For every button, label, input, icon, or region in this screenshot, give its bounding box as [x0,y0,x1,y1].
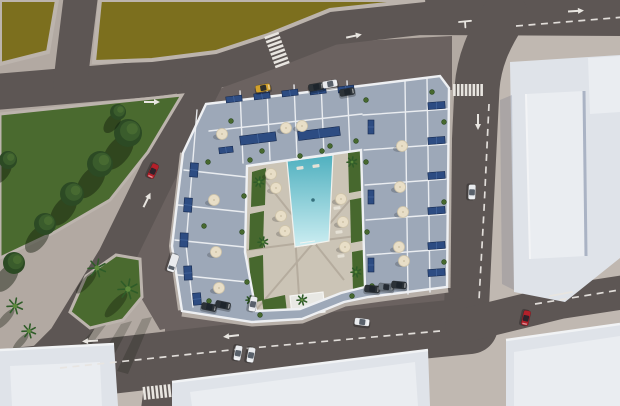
umbrella-pole [399,186,401,188]
potted-plant [245,280,250,285]
potted-plant [242,194,247,199]
tree-canopy [117,106,123,112]
potted-plant [207,299,212,304]
road-top-left [70,0,81,86]
car-dark-parked-south-4 [390,281,408,292]
potted-plant [350,294,355,299]
umbrella-pole [344,246,346,248]
solar-panel [184,198,193,213]
crosswalk-stripe [461,84,464,96]
vehicle-windows [359,319,366,325]
vehicle-windows [313,84,320,91]
vehicle-windows [206,304,213,311]
tree-canopy [71,186,81,196]
vehicle-windows [469,189,475,195]
palm-crown [94,265,99,270]
crosswalk-stripe [453,84,456,96]
potted-plant [364,98,369,103]
solar-panel [192,293,201,306]
potted-plant [229,119,234,124]
umbrella-pole [403,260,405,262]
potted-plant [442,260,447,265]
palm-crown [351,161,354,164]
potted-plant [328,144,333,149]
crosswalk-stripe [480,84,483,96]
solar-panel [190,163,199,178]
umbrella-pole [275,187,277,189]
garden-patch [251,168,266,207]
umbrella-pole [401,145,403,147]
vehicle-hood-highlight [469,197,474,199]
palm-crown [262,241,265,244]
solar-panel [428,101,445,109]
umbrella-pole [218,287,220,289]
crosswalk-stripe [476,84,479,96]
car-white-right-road [466,183,476,200]
umbrella-pole [340,198,342,200]
aerial-render-scene [0,0,620,406]
crosswalk-stripe [469,84,472,96]
crosswalk-stripe [465,84,468,96]
vehicle-windows [369,286,375,292]
umbrella-pole [342,221,344,223]
potted-plant [206,160,211,165]
tree-canopy [127,123,138,134]
vehicle-windows [327,81,334,88]
vehicle-windows [383,284,389,290]
vehicle-windows [344,89,351,96]
umbrella-pole [398,246,400,248]
tree-canopy [7,154,14,161]
potted-plant [258,313,263,318]
umbrella-pole [221,133,223,135]
solar-panel [428,268,445,276]
umbrella-pole [213,199,215,201]
potted-plant [202,224,207,229]
potted-plant [430,90,435,95]
pool-swimmer [311,198,315,202]
palm-crown [13,304,17,308]
umbrella-pole [280,215,282,217]
building-right-shadow [500,95,514,290]
palm-crown [125,286,131,292]
building-bottom-left-roof [10,362,102,406]
palm-crown [258,181,261,184]
vehicle-windows [250,301,257,308]
solar-panel [428,206,445,214]
palm-crown [27,329,31,333]
tree-canopy [44,216,53,225]
umbrella-pole [215,251,217,253]
palm-crown [301,299,304,302]
tree-canopy [13,255,22,264]
solar-panel [428,241,445,249]
solar-panel [184,266,193,280]
solar-panel [428,136,445,144]
vehicle-windows [248,352,255,359]
umbrella-pole [270,173,272,175]
solar-panel [368,190,374,204]
vehicle-windows [260,85,267,92]
potted-plant [248,158,253,163]
solar-panel [219,146,234,154]
potted-plant [354,139,359,144]
building-right-annex [588,56,620,114]
tower-shade-edge [584,91,586,256]
umbrella-pole [284,230,286,232]
vehicle-windows [235,350,242,357]
potted-plant [442,200,447,205]
crosswalk-stripe [473,84,476,96]
crosswalk-stripe [457,84,460,96]
solar-panel [428,171,445,179]
solar-panel [368,258,374,272]
swimming-pool [287,155,333,247]
potted-plant [365,230,370,235]
aerial-render-stage [0,0,620,406]
vehicle-windows [220,302,227,309]
solar-panel [368,120,374,134]
tree-canopy [99,155,109,165]
vehicle-windows [396,282,402,288]
potted-plant [260,149,265,154]
potted-plant [442,120,447,125]
umbrella-pole [402,211,404,213]
solar-panel [180,233,188,247]
building-right-tower [526,91,586,259]
umbrella-pole [285,127,287,129]
umbrella-pole [301,125,303,127]
potted-plant [364,160,369,165]
potted-plant [320,149,325,154]
palm-crown [355,271,358,274]
potted-plant [240,230,245,235]
potted-plant [298,154,303,159]
